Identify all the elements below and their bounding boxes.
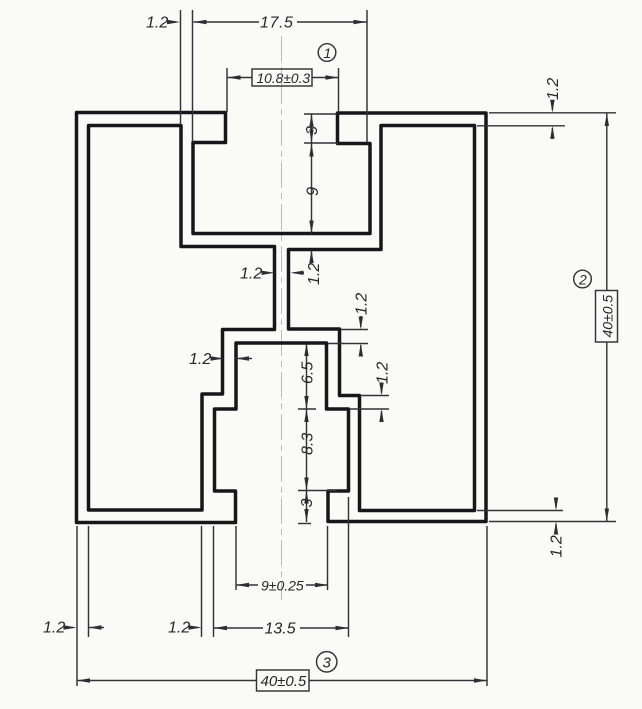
- svg-text:1.2: 1.2: [240, 266, 262, 283]
- svg-text:10.8±0.3: 10.8±0.3: [257, 71, 311, 86]
- svg-text:1.2: 1.2: [146, 15, 168, 32]
- svg-text:6.5: 6.5: [300, 362, 317, 384]
- svg-text:1.2: 1.2: [549, 535, 566, 557]
- svg-text:1.2: 1.2: [43, 620, 65, 637]
- svg-text:40±0.5: 40±0.5: [600, 295, 616, 338]
- svg-text:9: 9: [304, 187, 322, 196]
- svg-text:1.2: 1.2: [306, 263, 323, 285]
- svg-text:1.2: 1.2: [168, 620, 190, 637]
- svg-text:1.2: 1.2: [354, 293, 371, 315]
- svg-text:17.5: 17.5: [260, 15, 294, 32]
- svg-text:9±0.25: 9±0.25: [261, 578, 304, 594]
- svg-text:13.5: 13.5: [265, 621, 296, 638]
- svg-text:1.2: 1.2: [375, 362, 392, 384]
- svg-text:2: 2: [578, 272, 587, 288]
- svg-text:3: 3: [299, 499, 316, 508]
- svg-text:1: 1: [324, 45, 332, 61]
- svg-text:8.3: 8.3: [300, 433, 317, 455]
- svg-text:3: 3: [304, 126, 321, 135]
- svg-text:3: 3: [323, 655, 332, 672]
- svg-text:1.2: 1.2: [189, 351, 211, 368]
- svg-text:1.2: 1.2: [545, 78, 562, 100]
- svg-text:40±0.5: 40±0.5: [261, 673, 307, 690]
